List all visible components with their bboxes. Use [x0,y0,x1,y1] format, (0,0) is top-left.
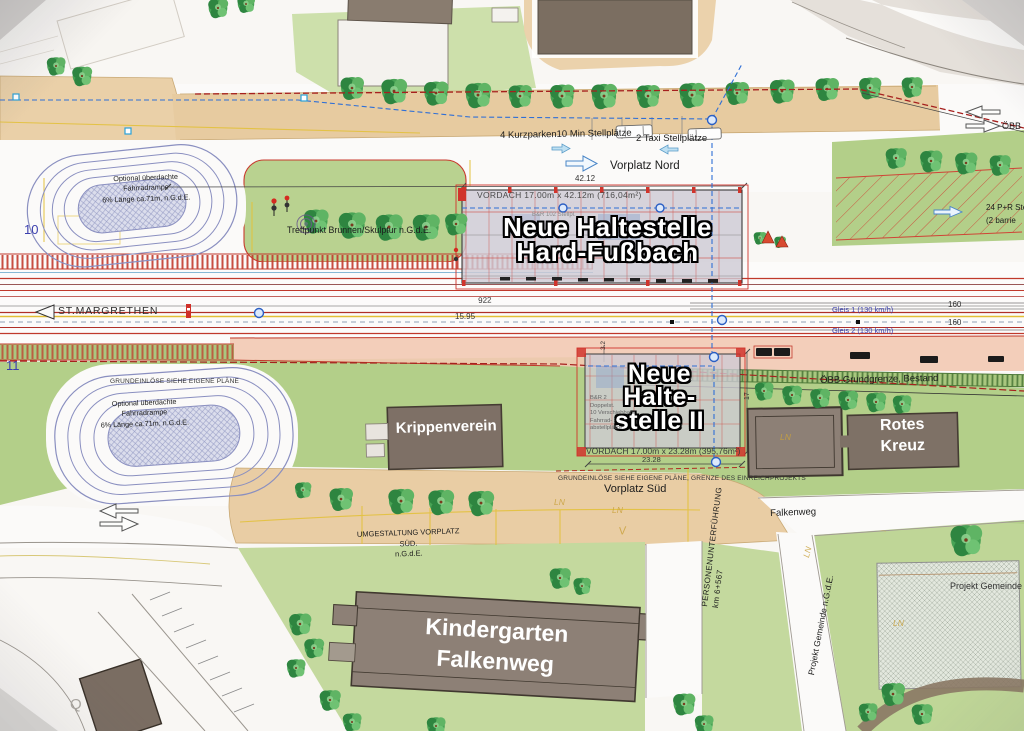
dim-17: 17 [744,392,752,400]
tree-icon [330,488,354,511]
tree-icon [679,83,705,108]
tree-icon [920,151,942,173]
building-neighbor [747,407,842,477]
dim-23-28: 23.28 [642,455,661,464]
label-grundeinloese-1: GRUNDEINLÖSE SIEHE EIGENE PLÄNE [110,378,239,386]
label-ramp-south: Optional überdachte Fahrradrampe 6% Läng… [88,396,201,431]
label-pr-stellplaetze: 24 P+R Ste (2 barrie [986,202,1024,228]
dim-922: 922 [478,296,492,306]
label-obb-edge: ÖBB G [1002,121,1024,132]
tree-icon [882,683,906,706]
dim-15-95: 15.95 [455,312,475,322]
label-obb-grundgrenze: ÖBB Grundgrenze, Bestand [820,373,938,386]
tree-icon [950,525,982,556]
marker-km-11: 11 [6,358,20,374]
label-st-margrethen: ST.MARGRETHEN [58,305,158,318]
tree-icon [695,715,714,731]
label-station-1: Neue Haltestelle Hard-Fußbach [495,215,720,264]
tree-icon [208,0,228,18]
label-gleis-1: Gleis 1 (130 km/h) [832,305,893,314]
tree-icon [388,489,414,514]
tree-icon [990,155,1011,176]
tree-icon [428,490,454,515]
marker-km-10: 10 [24,222,38,238]
tree-icon [770,79,795,103]
tree-icon [445,214,467,236]
tree-icon [893,395,912,413]
label-vordach-1: VORDACH 17.00m x 42.12m (716,04m²) [477,190,642,200]
label-kurzparken: 4 Kurzparken10 Min Stellplätze [500,128,632,142]
tree-icon [866,393,886,413]
tree-icon [886,148,907,169]
dim-160-a: 160 [948,300,961,310]
dim-3-2: 3.2 [600,341,608,350]
marker-ln: LN [612,505,623,515]
tree-icon [381,79,407,104]
label-rotes-kreuz: Rotes Kreuz [846,414,959,459]
tree-icon [782,386,802,406]
tree-icon [320,690,341,711]
tree-icon [550,84,575,108]
tree-icon [424,81,449,105]
tree-icon [810,389,830,409]
dim-42-12: 42.12 [575,174,595,184]
tree-icon [912,704,933,725]
tree-icon [465,83,491,108]
tree-icon [304,639,324,659]
tree-icon [955,153,977,175]
label-falkenweg: Falkenweg [770,506,816,519]
label-canopy2-interior: B&R 2 Doppelst. 10 Verschiebbare Fahrrad… [590,395,635,433]
label-ramp-north: Optional überdachte Fahrradrampe 6% Läng… [88,171,204,206]
label-vorplatz-nord: Vorplatz Nord [610,160,680,174]
label-grundeinloese-2: GRUNDEINLÖSE SIEHE EIGENE PLÄNE, GRENZE … [558,475,806,483]
marker-ln: LN [780,432,791,442]
label-umgestaltung: UMGESTALTUNG VORPLATZ SÜD. n.G.d.E. [352,526,465,561]
tree-icon [287,659,306,677]
tree-icon [343,713,362,731]
tree-icon [468,491,494,516]
label-vordach-2: VORDACH 17.00m x 23.28m (395,76m²) [586,446,740,456]
tree-icon [859,703,878,721]
label-projekt-gemeinde-area: Projekt Gemeinde n.G.d.E. [950,581,1024,592]
label-vorplatz-sued: Vorplatz Süd [604,483,666,496]
site-plan-photo: 4 Kurzparken10 Min Stellplätze 2 Taxi St… [0,0,1024,731]
tree-icon [637,85,661,108]
tree-icon [591,84,617,109]
tree-icon [859,78,881,100]
tree-icon [427,717,446,731]
tree-icon [573,578,591,595]
marker-ln: LN [893,618,904,628]
label-treffpunkt: Treffpunkt Brunnen/Skulptur n.G.d.E. [287,225,431,236]
marker-q: Q [70,696,82,714]
label-taxi: 2 Taxi Stellplätze [636,133,707,144]
tree-icon [838,391,858,411]
tree-icon [673,694,695,716]
label-krippenverein: Krippenverein [390,417,502,438]
tree-icon [902,77,923,98]
tree-icon [72,67,92,87]
tree-icon [509,85,533,108]
marker-ln: LN [554,497,565,507]
tree-icon [295,482,311,498]
dim-160-b: 160 [948,318,961,328]
tree-icon [726,82,750,105]
tree-icon [47,57,66,75]
tree-icon [550,568,571,589]
tree-icon [341,77,365,100]
tree-icon [755,382,774,400]
label-gleis-2: Gleis 2 (130 km/h) [832,326,893,335]
tree-icon [289,614,311,636]
